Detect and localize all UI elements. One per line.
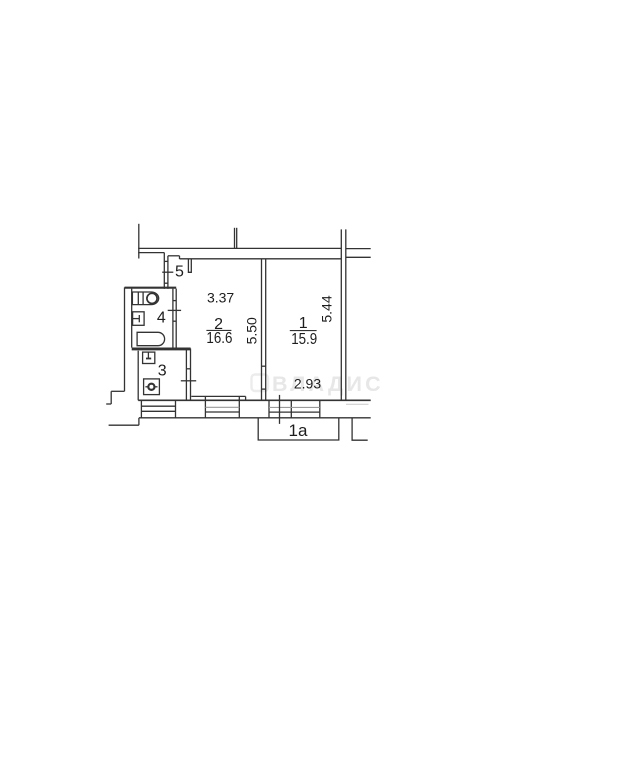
svg-text:2.93: 2.93 (294, 376, 321, 392)
svg-text:3: 3 (158, 363, 167, 380)
svg-text:1а: 1а (289, 421, 308, 440)
svg-text:5.44: 5.44 (319, 295, 335, 322)
svg-text:3.37: 3.37 (207, 289, 234, 305)
svg-text:1: 1 (299, 315, 308, 332)
svg-text:15.9: 15.9 (291, 331, 317, 348)
svg-text:ВЛАДИС: ВЛАДИС (272, 372, 384, 396)
svg-text:5: 5 (175, 264, 184, 281)
svg-text:5.50: 5.50 (244, 317, 260, 344)
svg-text:16.6: 16.6 (206, 330, 232, 347)
svg-text:4: 4 (157, 310, 166, 327)
